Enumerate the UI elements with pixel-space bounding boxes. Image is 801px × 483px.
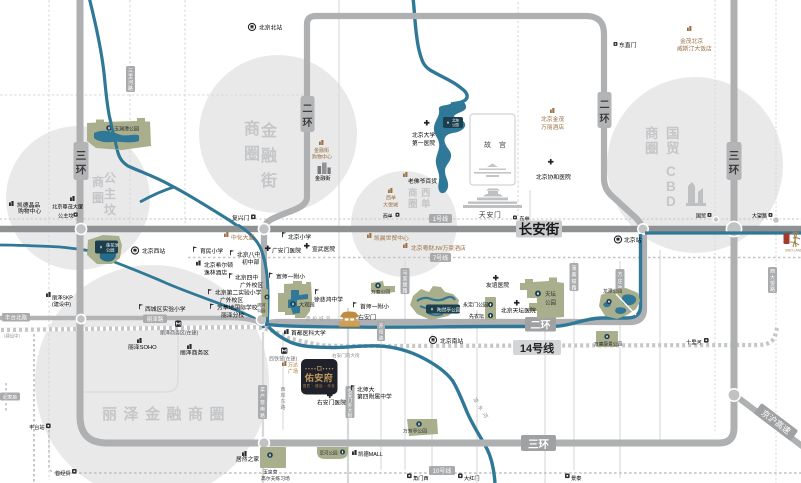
svg-text:东单: 东单	[520, 216, 530, 223]
svg-text:三: 三	[729, 150, 740, 162]
svg-text:万丽酒店: 万丽酒店	[541, 123, 564, 131]
svg-text:东直门: 东直门	[619, 41, 637, 49]
svg-text:东: 东	[280, 398, 285, 405]
svg-text:丽泽SKP: 丽泽SKP	[52, 294, 73, 302]
svg-text:三: 三	[76, 150, 87, 162]
svg-text:圈: 圈	[244, 145, 260, 163]
svg-text:纪家庙: 纪家庙	[3, 394, 17, 401]
svg-text:广安门医院: 广安门医院	[272, 247, 301, 255]
svg-text:北京尊茂大厦: 北京尊茂大厦	[52, 203, 83, 211]
svg-text:公园: 公园	[545, 300, 557, 307]
svg-text:北京站: 北京站	[624, 236, 642, 244]
svg-text:金融街: 金融街	[314, 147, 329, 154]
svg-text:万廉康景公园: 万廉康景公园	[594, 341, 622, 348]
svg-text:阳: 阳	[379, 329, 384, 336]
svg-text:购物中心: 购物中心	[312, 154, 332, 161]
svg-text:国: 国	[666, 126, 680, 141]
svg-text:丽泽分校: 丽泽分校	[221, 311, 244, 319]
svg-text:堡: 堡	[402, 282, 407, 289]
svg-text:佑安府: 佑安府	[304, 372, 334, 383]
svg-text:天安门: 天安门	[479, 210, 502, 219]
svg-text:SINO LAND: SINO LAND	[785, 249, 801, 253]
svg-text:初中部: 初中部	[242, 258, 260, 266]
svg-text:丰台站: 丰台站	[29, 423, 45, 431]
svg-text:万达: 万达	[288, 362, 298, 369]
svg-text:万寿公园: 万寿公园	[371, 289, 390, 296]
svg-text:二环: 二环	[531, 320, 551, 332]
svg-text:北京八中: 北京八中	[237, 251, 260, 259]
svg-text:大望路: 大望路	[752, 213, 767, 220]
svg-text:环: 环	[600, 113, 610, 125]
svg-text:路: 路	[402, 288, 407, 295]
svg-text:主: 主	[104, 186, 116, 201]
svg-text:北海: 北海	[452, 118, 459, 123]
svg-text:金茂北京: 金茂北京	[680, 37, 703, 45]
svg-text:圈: 圈	[408, 199, 418, 210]
svg-text:居然之家: 居然之家	[236, 455, 259, 463]
svg-text:凯德MALL: 凯德MALL	[358, 450, 383, 458]
svg-text:D: D	[666, 194, 676, 209]
svg-text:金融街: 金融街	[315, 174, 331, 182]
svg-text:景泰: 景泰	[571, 474, 582, 482]
svg-text:街: 街	[348, 412, 353, 419]
svg-text:14号线: 14号线	[520, 341, 554, 355]
svg-text:岸: 岸	[280, 392, 285, 399]
svg-text:贸: 贸	[666, 140, 680, 156]
svg-text:高尔夫练习场: 高尔夫练习场	[261, 475, 290, 482]
svg-text:公园: 公园	[452, 122, 459, 127]
svg-text:故 宫: 故 宫	[484, 140, 509, 149]
svg-text:首都医科大学: 首都医科大学	[291, 329, 326, 337]
svg-text:北京南站: 北京南站	[440, 337, 463, 345]
svg-text:首师一附小: 首师一附小	[360, 303, 389, 311]
svg-text:10号线: 10号线	[433, 467, 452, 475]
svg-text:二: 二	[600, 99, 610, 111]
svg-text:商: 商	[92, 174, 104, 189]
svg-text:路: 路	[280, 404, 285, 411]
svg-text:芳草地国际学校: 芳草地国际学校	[217, 304, 258, 312]
svg-text:西单: 西单	[386, 195, 396, 202]
svg-text:大观园: 大观园	[299, 301, 315, 309]
svg-text:龙潭公园: 龙潭公园	[603, 288, 622, 295]
svg-text:长安街: 长安街	[519, 221, 560, 237]
svg-text:复兴门: 复兴门	[232, 214, 250, 222]
svg-text:角门西: 角门西	[413, 474, 429, 482]
svg-text:第一医院: 第一医院	[412, 139, 435, 147]
svg-text:草河公园: 草河公园	[320, 450, 338, 457]
svg-text:商: 商	[645, 125, 659, 141]
svg-text:购物中心: 购物中心	[18, 207, 41, 215]
svg-text:望: 望	[770, 280, 775, 287]
svg-text:永定门公园: 永定门公园	[463, 302, 488, 309]
svg-text:蒲: 蒲	[571, 265, 576, 272]
svg-text:北京希尔顿: 北京希尔顿	[204, 261, 233, 269]
svg-text:公: 公	[104, 171, 116, 185]
svg-text:徐悲鸿中学: 徐悲鸿中学	[314, 296, 343, 304]
svg-text:商: 商	[244, 119, 260, 138]
svg-text:玉渊潭公园: 玉渊潭公园	[114, 126, 139, 133]
svg-text:二: 二	[303, 103, 313, 115]
svg-text:大悦城: 大悦城	[383, 202, 398, 209]
svg-text:商: 商	[408, 187, 418, 199]
svg-text:凯德晶品: 凯德晶品	[17, 201, 40, 209]
svg-text:三环: 三环	[528, 439, 549, 451]
svg-text:圈: 圈	[645, 141, 659, 156]
svg-text:西铁营(在建): 西铁营(在建)	[269, 356, 298, 363]
svg-text:(建设中): (建设中)	[52, 300, 71, 308]
svg-text:菜: 菜	[260, 386, 265, 393]
svg-text:公主坟: 公主坟	[58, 212, 74, 220]
svg-text:首经贸: 首经贸	[55, 469, 71, 477]
svg-text:圈: 圈	[92, 190, 104, 205]
svg-text:丽泽路: 丽泽路	[147, 315, 164, 323]
svg-text:北京北站: 北京北站	[259, 24, 282, 32]
svg-text:北京天坛医院: 北京天坛医院	[501, 307, 536, 315]
svg-text:B: B	[666, 179, 676, 194]
svg-text:方: 方	[617, 271, 622, 278]
svg-text:大红门: 大红门	[464, 474, 480, 482]
svg-text:威斯汀大饭店: 威斯汀大饭店	[677, 45, 712, 53]
svg-text:北京西站: 北京西站	[142, 247, 165, 255]
svg-text:广外校区: 广外校区	[220, 296, 243, 304]
svg-text:北京粤财JW万豪酒店: 北京粤财JW万豪酒店	[411, 244, 466, 252]
svg-text:中化大厦: 中化大厦	[231, 234, 254, 242]
svg-text:家: 家	[402, 276, 407, 283]
svg-text:逸林酒店: 逸林酒店	[204, 269, 227, 277]
svg-text:第四附属中学: 第四附属中学	[357, 393, 392, 401]
svg-text:西护城河: 西护城河	[306, 315, 332, 322]
svg-text:路: 路	[571, 285, 576, 292]
svg-text:环: 环	[76, 164, 87, 176]
svg-text:宣师一附小: 宣师一附小	[276, 273, 305, 281]
svg-text:丰台北路: 丰台北路	[5, 314, 28, 322]
svg-text:街: 街	[260, 171, 277, 190]
svg-text:北京小学: 北京小学	[288, 233, 311, 241]
svg-text:右安门内大街: 右安门内大街	[332, 352, 360, 359]
svg-text:国贸: 国贸	[696, 213, 706, 220]
svg-text:（建设中）: （建设中）	[1, 333, 23, 340]
svg-text:马: 马	[402, 270, 407, 277]
svg-text:十里河: 十里河	[686, 338, 702, 346]
svg-text:单: 单	[421, 198, 431, 210]
svg-text:榆: 榆	[571, 278, 576, 285]
svg-text:路: 路	[260, 412, 265, 419]
svg-text:1号线: 1号线	[433, 215, 448, 223]
svg-text:育民小学: 育民小学	[200, 247, 223, 255]
svg-text:北京四中: 北京四中	[235, 274, 258, 282]
svg-text:路: 路	[770, 286, 775, 293]
svg-text:路: 路	[128, 85, 133, 92]
svg-text:西城区实验小学: 西城区实验小学	[145, 305, 186, 313]
svg-text:庄: 庄	[617, 278, 622, 285]
svg-text:万芳亭公园: 万芳亭公园	[403, 428, 427, 435]
svg-text:陶然亭公园: 陶然亭公园	[437, 307, 461, 314]
svg-text:右安门医院: 右安门医院	[317, 399, 346, 407]
svg-text:右安门: 右安门	[358, 314, 376, 322]
svg-text:北京金茂: 北京金茂	[541, 115, 564, 123]
svg-text:老佛爷百货: 老佛爷百货	[408, 177, 437, 185]
svg-text:北师大: 北师大	[357, 386, 375, 394]
svg-text:丽泽商务区(在建): 丽泽商务区(在建)	[160, 330, 199, 337]
svg-text:环: 环	[303, 117, 313, 129]
svg-text:黄: 黄	[571, 272, 576, 279]
svg-text:先农坛: 先农坛	[469, 313, 484, 320]
svg-text:路: 路	[379, 335, 384, 342]
svg-text:营: 营	[260, 399, 265, 406]
svg-text:大: 大	[770, 274, 775, 281]
svg-text:广场: 广场	[288, 368, 298, 375]
svg-text:天坛: 天坛	[545, 291, 557, 298]
svg-text:丽泽SOHO: 丽泽SOHO	[128, 343, 157, 351]
svg-text:C: C	[666, 164, 676, 179]
svg-text:丽泽商务区: 丽泽商务区	[180, 349, 209, 357]
svg-text:凯晨世贸中心: 凯晨世贸中心	[374, 234, 409, 242]
svg-text:北京协和医院: 北京协和医院	[536, 173, 571, 181]
svg-text:户: 户	[260, 393, 265, 400]
svg-text:坟: 坟	[104, 202, 116, 217]
svg-text:融: 融	[261, 147, 277, 165]
svg-text:玉泉营: 玉泉营	[263, 469, 278, 476]
svg-text:南: 南	[260, 406, 265, 413]
svg-text:宣武医院: 宣武医院	[312, 245, 335, 253]
svg-text:环: 环	[729, 164, 740, 176]
svg-text:西单: 西单	[383, 213, 393, 220]
svg-text:7号线: 7号线	[433, 254, 448, 262]
svg-text:丽泽金融商圈: 丽泽金融商圈	[102, 405, 231, 423]
svg-text:广外校区: 广外校区	[240, 281, 263, 289]
svg-text:北京第二实验小学: 北京第二实验小学	[215, 289, 262, 297]
svg-text:友谊医院: 友谊医院	[486, 281, 509, 289]
svg-text:国匠 · 臻品 · 传世: 国匠 · 臻品 · 传世	[303, 383, 335, 388]
svg-text:北京大学: 北京大学	[412, 131, 435, 139]
svg-text:金: 金	[260, 121, 278, 140]
svg-text:西: 西	[421, 188, 431, 199]
svg-text:河: 河	[128, 79, 133, 86]
